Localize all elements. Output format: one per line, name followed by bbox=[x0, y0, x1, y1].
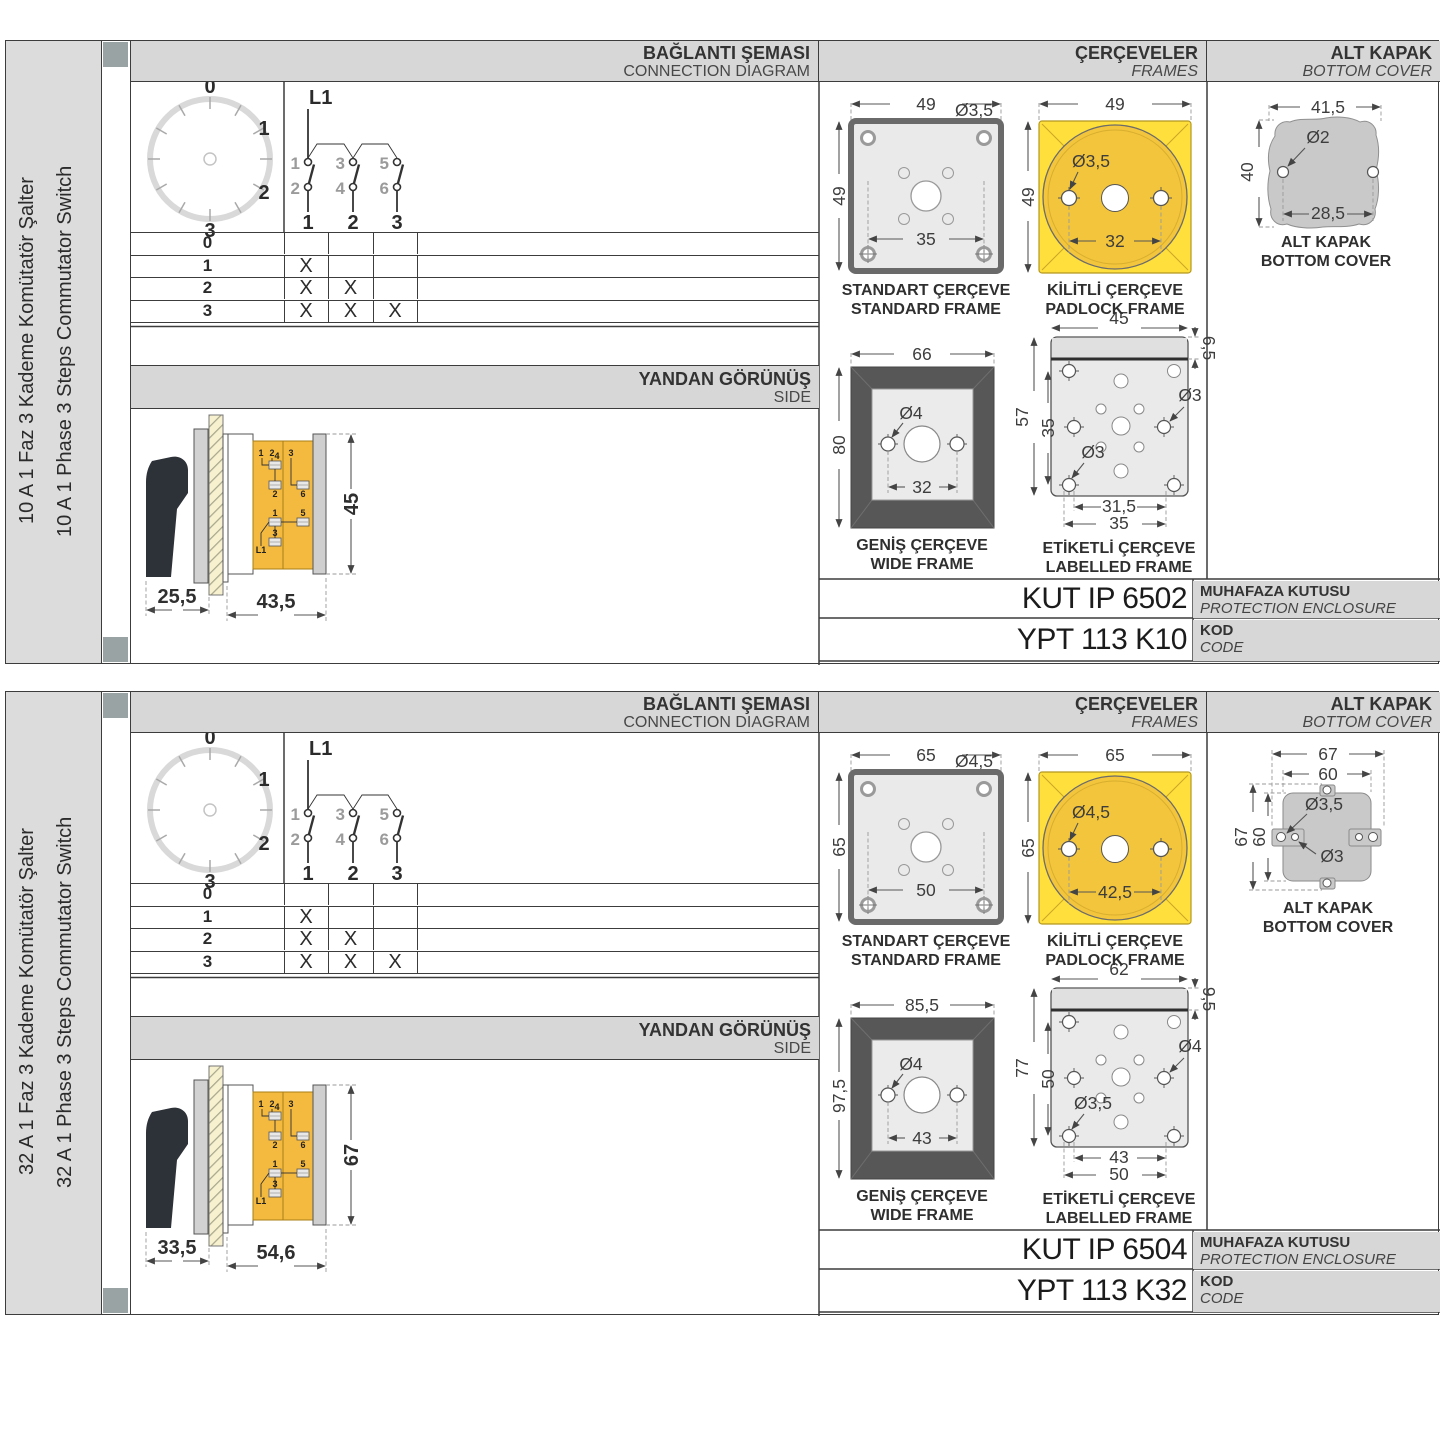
dial-pos-2: 2 bbox=[258, 833, 269, 855]
wide-frame-drawing: 85,5 Ø4 43 97,5 bbox=[829, 995, 994, 1179]
dial-pos-1: 1 bbox=[258, 118, 269, 140]
dim-wide-hole: Ø4 bbox=[899, 1054, 923, 1074]
phase-label: L1 bbox=[309, 738, 332, 760]
caption-bottom-cover: ALT KAPAKBOTTOM COVER bbox=[1231, 233, 1421, 271]
switch-handle bbox=[146, 457, 188, 577]
pole-2: 2 bbox=[347, 212, 358, 234]
dim-side-depth2: 54,6 bbox=[257, 1242, 296, 1264]
term-label-g: 1 bbox=[272, 1159, 277, 1169]
dim-wide-width: 66 bbox=[912, 344, 931, 364]
dim-labelled-hole-left: Ø3 bbox=[1081, 442, 1104, 462]
labelled-frame-drawing: 62 9,5 bbox=[1012, 959, 1219, 1184]
header-bottom-cover: ALT KAPAK BOTTOM COVER bbox=[1207, 41, 1440, 82]
term-label-h: 5 bbox=[300, 508, 305, 518]
term-label-f: 6 bbox=[300, 489, 305, 499]
pole-1: 1 bbox=[302, 863, 313, 885]
rotary-dial: 0 1 2 3 bbox=[148, 727, 272, 893]
dim-wide-pitch: 43 bbox=[912, 1128, 931, 1148]
dim-side-height: 45 bbox=[341, 493, 363, 515]
dim-side-height: 67 bbox=[341, 1144, 363, 1166]
table-row: 1 X bbox=[131, 256, 819, 279]
dim-standard-pitch: 50 bbox=[916, 880, 936, 900]
terminal-4: 4 bbox=[336, 830, 346, 849]
dim-cover-height1: 67 bbox=[1231, 827, 1251, 846]
pole-3: 3 bbox=[391, 212, 402, 234]
standard-frame-drawing: 65 Ø4,5 50 65 bbox=[829, 745, 1001, 922]
technical-drawing: 0 1 2 3 L1 1 3 5 2 4 6 1 2 3 bbox=[6, 692, 1440, 1316]
term-label-e: 3 bbox=[288, 448, 293, 458]
dim-cover-hole: Ø2 bbox=[1306, 127, 1329, 147]
code-label-cell: KOD CODE bbox=[1193, 1271, 1440, 1313]
dim-standard-height: 65 bbox=[829, 837, 849, 856]
table-row: 0 bbox=[131, 233, 819, 256]
product-code: YPT 113 K32 bbox=[819, 1271, 1187, 1312]
table-row: 3 X X X bbox=[131, 952, 819, 975]
dim-padlock-width: 49 bbox=[1105, 94, 1124, 114]
dim-cover-pitch: 28,5 bbox=[1311, 203, 1345, 223]
term-label-e: 3 bbox=[288, 1099, 293, 1109]
dim-padlock-height: 49 bbox=[1018, 187, 1038, 206]
dim-side-depth1: 33,5 bbox=[158, 1237, 197, 1259]
dim-padlock-pitch: 42,5 bbox=[1098, 882, 1132, 902]
dim-cover-hole2: Ø3 bbox=[1320, 846, 1343, 866]
terminal-3: 3 bbox=[336, 805, 345, 824]
caption-padlock-frame: KİLİTLİ ÇERÇEVEPADLOCK FRAME bbox=[1020, 932, 1210, 970]
terminal-5: 5 bbox=[380, 154, 389, 173]
term-label-c: 4 bbox=[274, 1102, 279, 1112]
dim-standard-width: 49 bbox=[916, 94, 935, 114]
dim-standard-hole: Ø3,5 bbox=[955, 100, 993, 120]
bottom-cover-drawing: 67 60 Ø3,5 Ø3 67 60 bbox=[1231, 744, 1384, 890]
term-label-a: 1 bbox=[258, 1099, 263, 1109]
terminal-2: 2 bbox=[291, 830, 300, 849]
dial-pos-1: 1 bbox=[258, 769, 269, 791]
bottom-cover-drawing: 41,5 Ø2 40 28,5 bbox=[1237, 97, 1381, 228]
standard-frame-drawing: 49 Ø3,5 35 49 bbox=[829, 94, 1001, 271]
dim-cover-width1: 67 bbox=[1318, 744, 1337, 764]
caption-labelled-frame: ETİKETLİ ÇERÇEVELABELLED FRAME bbox=[1024, 1190, 1214, 1228]
dim-labelled-height: 77 bbox=[1012, 1058, 1032, 1077]
term-label-h: 5 bbox=[300, 1159, 305, 1169]
dim-side-depth2: 43,5 bbox=[257, 591, 296, 613]
dim-labelled-hole-right: Ø3 bbox=[1178, 385, 1201, 405]
contact-diagram: L1 1 3 5 2 4 6 1 2 3 bbox=[291, 738, 403, 885]
pole-1: 1 bbox=[302, 212, 313, 234]
caption-standard-frame: STANDART ÇERÇEVESTANDARD FRAME bbox=[831, 932, 1021, 970]
dim-wide-pitch: 32 bbox=[912, 477, 931, 497]
side-view-drawing: 1 2 4 2 3 6 1 5 3 L1 67 33,5 54,6 bbox=[146, 1066, 363, 1272]
caption-padlock-frame: KİLİTLİ ÇERÇEVEPADLOCK FRAME bbox=[1020, 281, 1210, 319]
caption-labelled-frame: ETİKETLİ ÇERÇEVELABELLED FRAME bbox=[1024, 539, 1214, 577]
dim-labelled-height: 57 bbox=[1012, 407, 1032, 426]
panel-hatch bbox=[209, 415, 223, 595]
dim-cover-height: 40 bbox=[1237, 162, 1257, 182]
product-section-10a: 10 A 1 Faz 3 Kademe Komütatör Şalter 10 … bbox=[5, 40, 1439, 664]
term-label-f: 6 bbox=[300, 1140, 305, 1150]
caption-bottom-cover: ALT KAPAKBOTTOM COVER bbox=[1233, 899, 1423, 937]
caption-wide-frame: GENİŞ ÇERÇEVEWIDE FRAME bbox=[827, 536, 1017, 574]
term-label-c: 4 bbox=[274, 451, 279, 461]
wide-frame-drawing: 66 Ø4 32 80 bbox=[829, 344, 994, 528]
dim-padlock-pitch: 32 bbox=[1105, 231, 1124, 251]
terminal-3: 3 bbox=[336, 154, 345, 173]
term-label-i: 3 bbox=[272, 528, 277, 538]
enclosure-code: KUT IP 6504 bbox=[819, 1233, 1187, 1269]
dim-cover-width: 41,5 bbox=[1311, 97, 1345, 117]
terminal-4: 4 bbox=[336, 179, 346, 198]
caption-wide-frame: GENİŞ ÇERÇEVEWIDE FRAME bbox=[827, 1187, 1017, 1225]
table-row: 3 X X X bbox=[131, 301, 819, 324]
table-row: 0 bbox=[131, 884, 819, 907]
table-row: 2 X X bbox=[131, 929, 819, 952]
header-frames: ÇERÇEVELER FRAMES bbox=[819, 41, 1207, 82]
term-label-j: L1 bbox=[256, 545, 267, 555]
caption-standard-frame: STANDART ÇERÇEVESTANDARD FRAME bbox=[831, 281, 1021, 319]
term-label-d: 2 bbox=[272, 489, 277, 499]
dim-wide-height: 97,5 bbox=[829, 1079, 849, 1113]
dim-wide-width: 85,5 bbox=[905, 995, 939, 1015]
dim-standard-height: 49 bbox=[829, 186, 849, 205]
terminal-6: 6 bbox=[380, 179, 389, 198]
product-section-32a: 32 A 1 Faz 3 Kademe Komütatör Şalter 32 … bbox=[5, 691, 1439, 1315]
dim-labelled-hole-right: Ø4 bbox=[1178, 1036, 1202, 1056]
dim-standard-pitch: 35 bbox=[916, 229, 935, 249]
padlock-frame-drawing: 49 Ø3,5 32 49 bbox=[1018, 94, 1191, 273]
table-row: 2 X X bbox=[131, 278, 819, 301]
dial-pos-2: 2 bbox=[258, 182, 269, 204]
dim-padlock-hole: Ø4,5 bbox=[1072, 802, 1110, 822]
dim-labelled-band: 9,5 bbox=[1199, 987, 1219, 1011]
dim-side-depth1: 25,5 bbox=[158, 586, 197, 608]
dim-padlock-width: 65 bbox=[1105, 745, 1124, 765]
header-side-view: YANDAN GÖRÜNÜŞ SIDE bbox=[131, 365, 819, 409]
dim-labelled-pitch2: 35 bbox=[1109, 513, 1128, 533]
header-side-view: YANDAN GÖRÜNÜŞ SIDE bbox=[131, 1016, 819, 1060]
dim-wide-height: 80 bbox=[829, 435, 849, 455]
labelled-frame-drawing: 45 6,5 bbox=[1012, 308, 1219, 533]
dim-cover-width2: 60 bbox=[1318, 764, 1338, 784]
dim-labelled-inner: 50 bbox=[1038, 1069, 1058, 1089]
contact-diagram: L1 1 3 5 2 4 6 1 2 3 bbox=[291, 87, 403, 234]
panel-hatch bbox=[209, 1066, 223, 1246]
term-label-d: 2 bbox=[272, 1140, 277, 1150]
enclosure-code: KUT IP 6502 bbox=[819, 582, 1187, 618]
term-label-g: 1 bbox=[272, 508, 277, 518]
product-code: YPT 113 K10 bbox=[819, 620, 1187, 661]
dim-labelled-hole-left: Ø3,5 bbox=[1074, 1093, 1112, 1113]
dim-padlock-hole: Ø3,5 bbox=[1072, 151, 1110, 171]
dim-cover-hole1: Ø3,5 bbox=[1305, 794, 1343, 814]
header-connection-diagram: BAĞLANTI ŞEMASI CONNECTION DIAGRAM bbox=[131, 41, 819, 82]
term-label-a: 1 bbox=[258, 448, 263, 458]
switching-table: 0 1 X 2 X X 3 X X X bbox=[131, 232, 819, 323]
enclosure-label-cell: MUHAFAZA KUTUSU PROTECTION ENCLOSURE bbox=[1193, 1232, 1440, 1270]
dim-wide-hole: Ø4 bbox=[899, 403, 923, 423]
term-label-j: L1 bbox=[256, 1196, 267, 1206]
side-view-drawing: 1 2 4 2 3 6 1 5 3 L1 45 25,5 43,5 bbox=[146, 415, 363, 621]
dim-labelled-pitch2: 50 bbox=[1109, 1164, 1129, 1184]
enclosure-label-cell: MUHAFAZA KUTUSU PROTECTION ENCLOSURE bbox=[1193, 581, 1440, 619]
code-label-cell: KOD CODE bbox=[1193, 620, 1440, 662]
dim-padlock-height: 65 bbox=[1018, 838, 1038, 857]
padlock-frame-drawing: 65 Ø4,5 42,5 65 bbox=[1018, 745, 1191, 924]
table-row: 1 X bbox=[131, 907, 819, 930]
phase-label: L1 bbox=[309, 87, 332, 109]
terminal-1: 1 bbox=[291, 805, 300, 824]
dim-standard-width: 65 bbox=[916, 745, 935, 765]
rotary-dial: 0 1 2 3 bbox=[148, 76, 272, 242]
term-label-i: 3 bbox=[272, 1179, 277, 1189]
header-frames: ÇERÇEVELER FRAMES bbox=[819, 692, 1207, 733]
technical-drawing: 0 1 2 3 L1 1 3 5 2 4 6 1 2 3 bbox=[6, 41, 1440, 665]
dim-cover-height2: 60 bbox=[1249, 827, 1269, 847]
switching-table: 0 1 X 2 X X 3 X X X bbox=[131, 883, 819, 974]
header-connection-diagram: BAĞLANTI ŞEMASI CONNECTION DIAGRAM bbox=[131, 692, 819, 733]
terminal-2: 2 bbox=[291, 179, 300, 198]
pole-3: 3 bbox=[391, 863, 402, 885]
switch-handle bbox=[146, 1108, 188, 1228]
terminal-1: 1 bbox=[291, 154, 300, 173]
dim-standard-hole: Ø4,5 bbox=[955, 751, 993, 771]
dim-labelled-band: 6,5 bbox=[1199, 336, 1219, 360]
terminal-5: 5 bbox=[380, 805, 389, 824]
dim-labelled-inner: 35 bbox=[1038, 418, 1058, 437]
pole-2: 2 bbox=[347, 863, 358, 885]
header-bottom-cover: ALT KAPAK BOTTOM COVER bbox=[1207, 692, 1440, 733]
terminal-6: 6 bbox=[380, 830, 389, 849]
catalog-page: { "shared": { "headers": { "connection_t… bbox=[0, 0, 1445, 1445]
